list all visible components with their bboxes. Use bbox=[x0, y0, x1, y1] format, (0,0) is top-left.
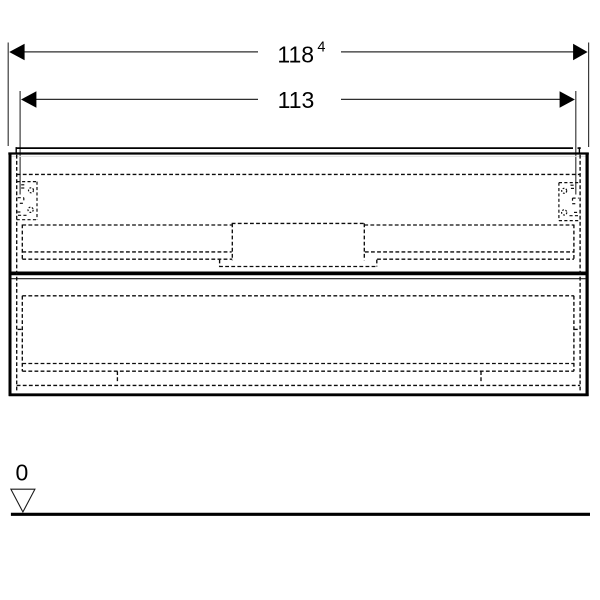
svg-text:0: 0 bbox=[16, 460, 29, 486]
svg-text:4: 4 bbox=[317, 40, 325, 56]
svg-text:118: 118 bbox=[277, 42, 314, 68]
svg-text:113: 113 bbox=[278, 87, 315, 113]
